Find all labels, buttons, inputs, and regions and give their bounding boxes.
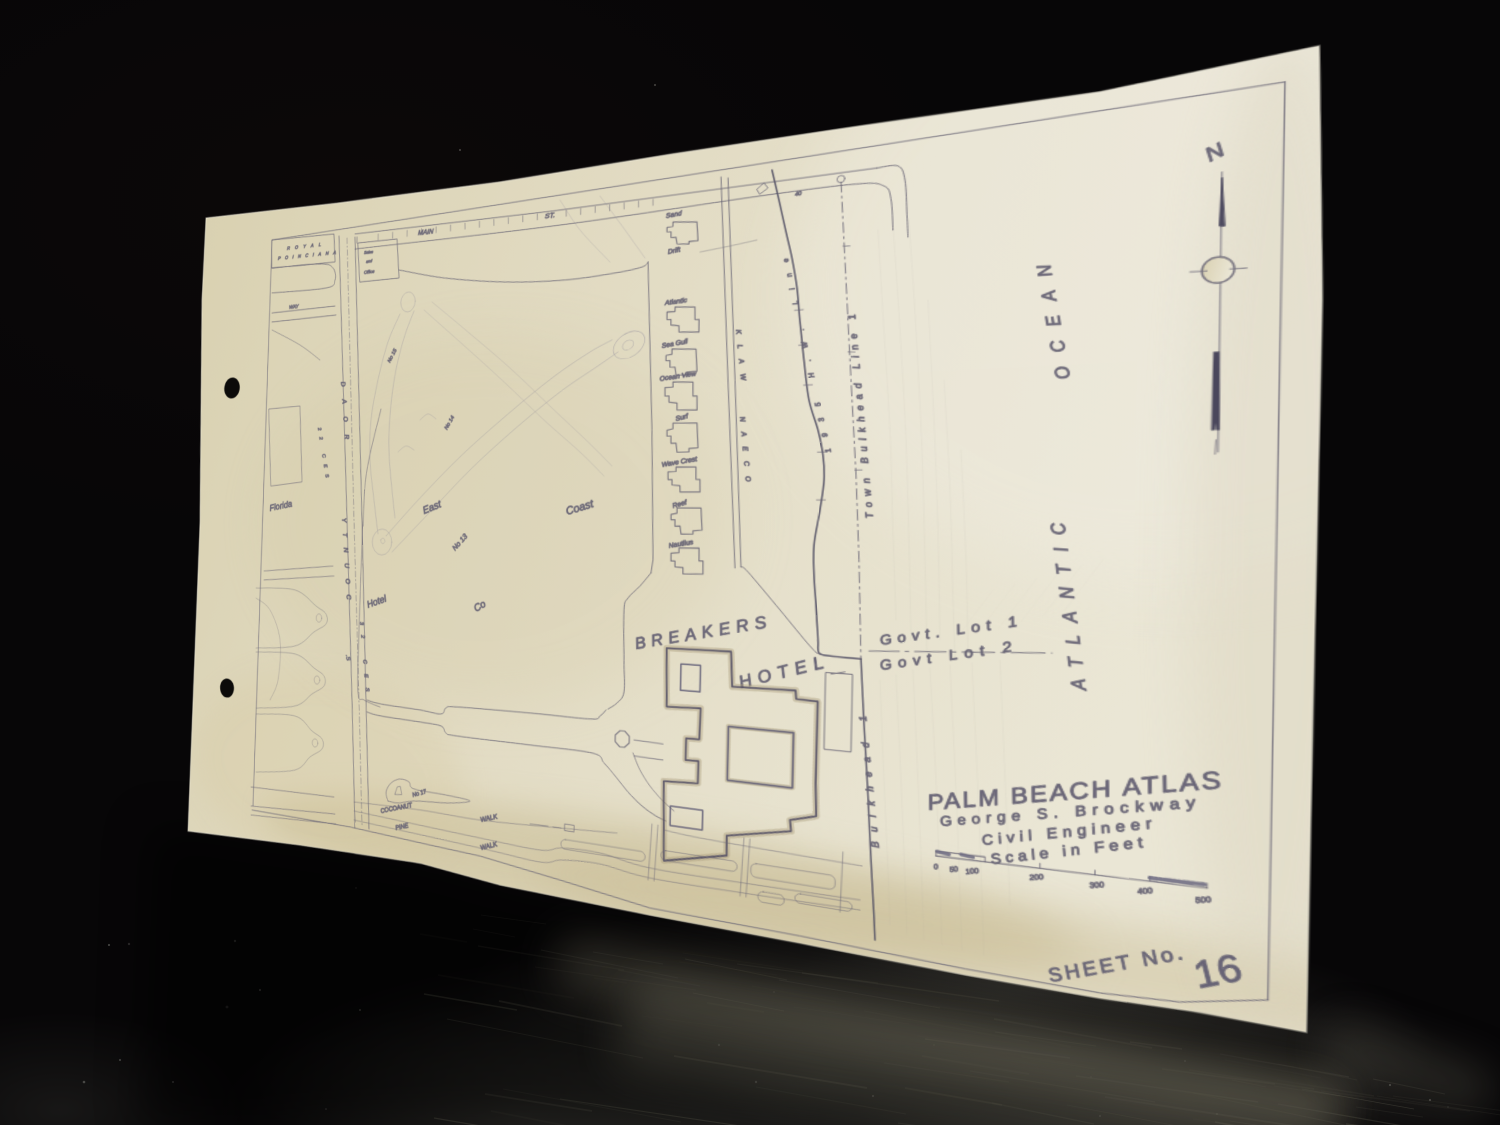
- svg-text:ST.: ST.: [545, 211, 555, 220]
- svg-text:and: and: [366, 258, 372, 264]
- svg-text:Sales: Sales: [364, 249, 374, 255]
- svg-text:40: 40: [795, 190, 802, 197]
- svg-text:200: 200: [1026, 872, 1045, 882]
